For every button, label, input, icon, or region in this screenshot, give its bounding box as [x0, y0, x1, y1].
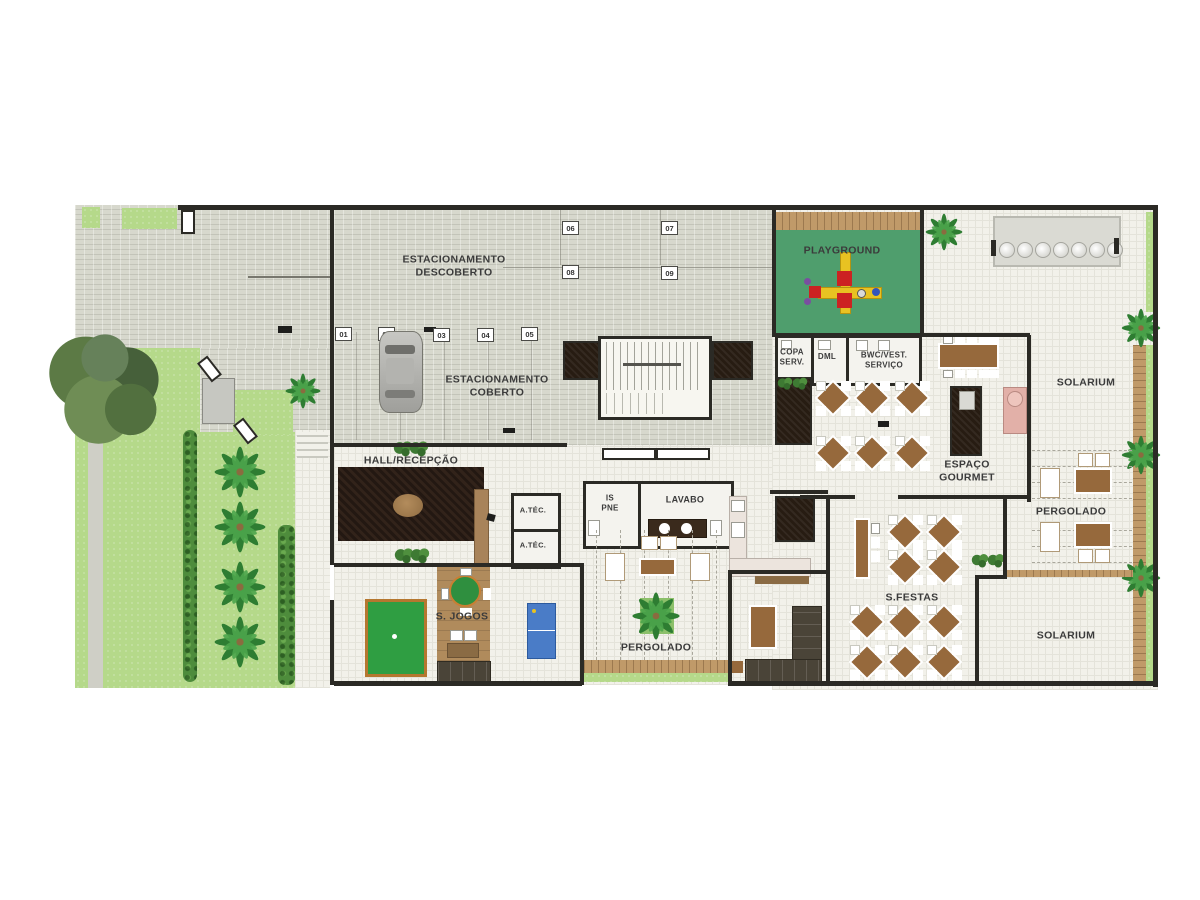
pergola-post-line	[692, 530, 693, 660]
long-dining-table	[940, 345, 997, 367]
lavabo-block	[583, 481, 734, 549]
wall-lounge-left	[728, 570, 732, 683]
toilet	[878, 340, 890, 351]
side-table	[731, 661, 743, 673]
wall-festas-left	[826, 495, 830, 685]
bush	[777, 375, 793, 391]
palm-tree	[923, 211, 965, 253]
armchair	[690, 553, 710, 581]
stair-treads	[606, 393, 669, 414]
party-table	[852, 647, 882, 677]
kitchen-counter	[729, 558, 811, 577]
wall	[1114, 238, 1119, 254]
stool	[999, 242, 1015, 258]
wall-bottom	[334, 681, 582, 686]
stool	[1089, 242, 1105, 258]
label-solarium-top: SOLARIUM	[1041, 377, 1131, 390]
armchair	[1040, 468, 1060, 498]
hedge-row-2	[278, 525, 295, 685]
parking-marker	[503, 428, 515, 433]
net-line	[528, 630, 555, 631]
chair	[1078, 549, 1093, 563]
entry-steps	[297, 432, 328, 458]
play-structure-seat	[804, 278, 811, 285]
label-a-tec-1: A.TÉC.	[512, 506, 554, 515]
pantry-box	[775, 496, 815, 542]
chair	[1095, 453, 1110, 467]
wall-lounge-top	[728, 570, 828, 574]
wall	[514, 529, 558, 532]
floor-marker	[878, 421, 889, 427]
pergola-post-line	[716, 530, 717, 660]
dining-table	[857, 438, 887, 468]
buffet-table	[856, 520, 868, 577]
label-bwc-vest-servico: BWC/VEST. SERVIÇO	[853, 350, 915, 369]
car-roof	[386, 358, 414, 384]
chair	[1078, 453, 1093, 467]
play-structure-platform	[809, 286, 821, 298]
cabinet-item	[464, 630, 477, 641]
pergola-deck	[584, 660, 730, 673]
large-tree	[45, 328, 165, 448]
wall-playground-right	[920, 207, 924, 337]
coffee-table	[641, 560, 674, 574]
chair	[1095, 549, 1110, 563]
label-playground: PLAYGROUND	[787, 245, 897, 258]
party-table	[890, 607, 920, 637]
party-table	[890, 647, 920, 677]
parking-divider	[560, 207, 561, 265]
dining-table	[857, 383, 887, 413]
patio-table	[1076, 524, 1110, 546]
pergola-post-line	[620, 530, 621, 660]
armchair	[1040, 522, 1060, 552]
edge-deck	[1133, 345, 1146, 682]
parking-spot-01: 01	[335, 327, 352, 341]
billiard-ball	[392, 634, 397, 639]
ball	[532, 609, 536, 613]
palm-tree	[211, 558, 269, 616]
hall-round-rug	[393, 494, 423, 517]
party-table	[890, 552, 920, 582]
dining-table	[818, 438, 848, 468]
armchair	[605, 553, 625, 581]
wall-left-building	[330, 600, 334, 685]
wall	[991, 240, 996, 256]
wall	[846, 338, 849, 383]
stool	[1053, 242, 1069, 258]
stool-row	[999, 242, 1123, 258]
chair	[460, 568, 472, 576]
party-table	[852, 607, 882, 637]
chair	[641, 536, 658, 550]
cabinet	[447, 643, 479, 658]
pergola-grass	[584, 673, 730, 682]
grill	[1007, 391, 1023, 407]
parking-spot-09: 09	[661, 266, 678, 280]
floor-plan: 01 02 03 04 05 06 07 08 09	[0, 0, 1200, 900]
elevator	[712, 341, 753, 380]
pergola-beam-line	[1032, 450, 1132, 451]
parking-divider	[660, 207, 661, 265]
reception-desk	[474, 489, 489, 571]
stair-rail	[623, 363, 681, 366]
low-wall	[656, 448, 710, 460]
pergola-beam-line	[1032, 498, 1132, 499]
wall-gourmet-right	[1027, 335, 1031, 502]
play-structure-platform	[837, 293, 852, 308]
stool	[1017, 242, 1033, 258]
party-table	[929, 647, 959, 677]
patio-table	[1076, 470, 1110, 492]
label-hall-recepcao: HALL/RECEPÇÃO	[346, 455, 476, 468]
dining-table	[897, 383, 927, 413]
car-windshield	[385, 345, 415, 354]
sink	[818, 340, 831, 350]
label-espaco-gourmet: ESPAÇO GOURMET	[932, 458, 1002, 483]
pergola-post-line	[596, 530, 597, 660]
cabinet-item	[450, 630, 463, 641]
car	[379, 331, 423, 413]
label-copa-serv: COPA SERV.	[774, 347, 810, 366]
palm-tree	[211, 443, 269, 501]
palm-tree	[211, 498, 269, 556]
chair-row	[943, 336, 953, 344]
wall-festas-right-lower	[975, 575, 979, 685]
low-wall	[602, 448, 656, 460]
dining-table	[897, 438, 927, 468]
wall-hall-bottom	[334, 563, 582, 567]
lounge-mat	[751, 607, 775, 647]
kitchen-shelf	[755, 576, 809, 584]
party-table	[929, 607, 959, 637]
wall-top	[178, 205, 1155, 210]
toilet	[588, 520, 600, 536]
wall-games-right	[580, 563, 584, 685]
entry-walk	[295, 430, 330, 688]
party-table	[929, 517, 959, 547]
wall-hall-top	[334, 443, 567, 447]
wall-festas-right	[1003, 495, 1007, 579]
label-estacionamento-descoberto: ESTACIONAMENTO DESCOBERTO	[395, 253, 513, 278]
label-a-tec-2: A.TÉC.	[512, 541, 554, 550]
palm-tree	[629, 589, 683, 643]
stair-treads	[606, 342, 704, 390]
sink	[731, 500, 745, 512]
bench	[181, 210, 195, 234]
stove	[959, 391, 975, 410]
chair-col	[871, 523, 880, 534]
wall-playground-left	[772, 207, 776, 337]
party-table	[929, 552, 959, 582]
parking-spot-06: 06	[562, 221, 579, 235]
plaza-marker	[278, 326, 292, 333]
parking-spot-08: 08	[562, 265, 579, 279]
chair	[441, 588, 449, 600]
plaza-line	[248, 276, 330, 278]
stool	[1035, 242, 1051, 258]
garden-path-left	[88, 432, 103, 688]
wall-left-building	[330, 205, 334, 565]
party-table	[890, 517, 920, 547]
staircase	[598, 336, 712, 396]
games-sofa	[437, 661, 491, 682]
play-structure-platform	[837, 271, 852, 286]
wall-gourmet-top	[772, 333, 1030, 337]
wall-right	[1153, 205, 1158, 687]
sink	[856, 340, 868, 351]
parking-spot-03: 03	[433, 328, 450, 342]
stove	[731, 522, 745, 538]
stool	[1071, 242, 1087, 258]
playground-deck	[775, 212, 922, 230]
stair-landing	[598, 390, 712, 420]
bush	[792, 375, 808, 391]
label-lavabo: LAVABO	[650, 495, 720, 506]
label-pergolado-center: PERGOLADO	[609, 642, 704, 655]
deck-strip	[1005, 570, 1133, 577]
gourmet-kitchen-counter	[950, 386, 982, 456]
wall-festas-jog	[975, 575, 1007, 579]
card-table	[449, 575, 481, 607]
car-rear-window	[385, 390, 415, 398]
wall-gourmet-bottom	[898, 495, 1030, 499]
wall-bottom	[728, 681, 1158, 686]
label-dml: DML	[812, 352, 842, 362]
chair-row	[943, 370, 953, 378]
lounge-counter	[993, 216, 1121, 267]
guardhouse	[202, 378, 235, 424]
label-solarium-bottom: SOLARIUM	[1021, 630, 1111, 643]
play-structure-seat	[804, 298, 811, 305]
wall-kitchen-top	[770, 490, 828, 494]
hedge-row-1	[183, 430, 197, 682]
grill-area	[1003, 387, 1027, 434]
parking-spot-07: 07	[661, 221, 678, 235]
label-s-jogos: S. JOGOS	[427, 611, 497, 624]
label-is-pne: IS PNE	[599, 493, 621, 512]
label-s-festas: S.FESTAS	[872, 592, 952, 605]
label-pergolado-right: PERGOLADO	[1024, 506, 1119, 519]
chair	[660, 536, 677, 550]
sink	[681, 523, 692, 534]
play-structure-seat	[857, 289, 866, 298]
lawn-patch-top1	[82, 207, 100, 228]
palm-tree	[283, 371, 323, 411]
lawn-patch-top2	[122, 208, 177, 229]
play-structure-seat	[872, 288, 880, 296]
parking-divider	[356, 332, 357, 440]
ping-pong-table	[527, 603, 556, 659]
bush	[410, 545, 430, 565]
technical-rooms	[511, 493, 561, 569]
parking-divider	[503, 267, 772, 268]
palm-tree	[211, 613, 269, 671]
parking-spot-05: 05	[521, 327, 538, 341]
label-estacionamento-coberto: ESTACIONAMENTO COBERTO	[442, 373, 552, 398]
dining-table	[818, 383, 848, 413]
parking-spot-04: 04	[477, 328, 494, 342]
billiards-table	[365, 599, 427, 677]
